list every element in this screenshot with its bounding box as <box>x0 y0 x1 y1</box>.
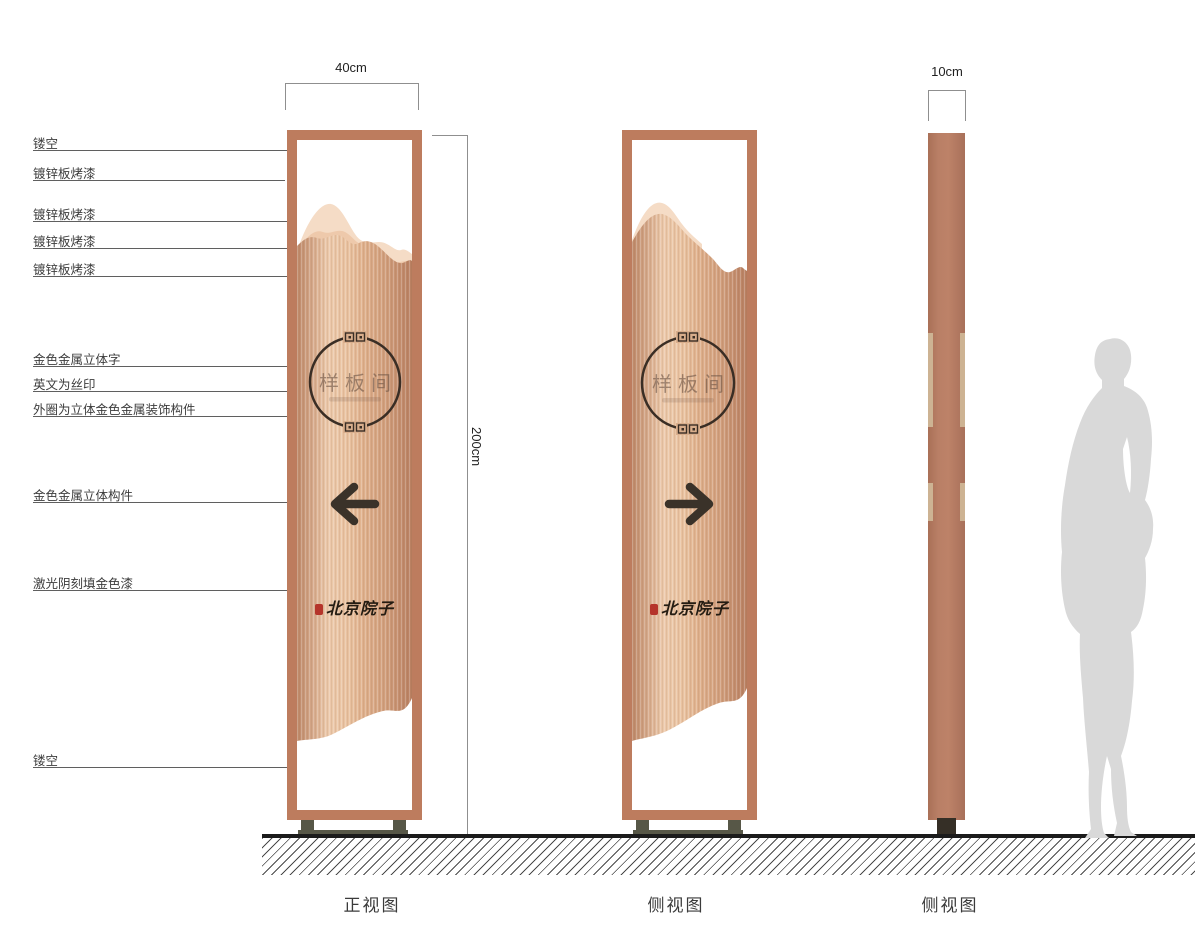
callout-leader-line <box>33 248 292 249</box>
room-name-text: 样板间 <box>652 373 730 396</box>
dimension-height: 200cm <box>469 427 484 466</box>
english-silkscreen-line <box>662 398 714 403</box>
drawing-canvas: 镂空 镀锌板烤漆 镀锌板烤漆 镀锌板烤漆 镀锌板烤漆 金色金属立体字 英文为丝印… <box>0 0 1195 927</box>
profile-edge-strip <box>960 483 965 521</box>
callout-leader-line <box>33 590 310 591</box>
dimension-bracket-front <box>285 83 419 110</box>
brand-name-text: 北京院子 <box>326 601 394 618</box>
callout-leader-line <box>33 221 325 222</box>
caption-side-view-1: 侧视图 <box>591 891 761 916</box>
greek-key-ornament-bottom <box>676 423 700 435</box>
english-silkscreen-line <box>329 397 381 402</box>
brand-logo-front: 北京院子 <box>287 595 422 619</box>
callout-leader-line <box>33 150 307 151</box>
red-seal-icon <box>315 604 323 615</box>
human-silhouette <box>1040 335 1185 840</box>
caption-front-view: 正视图 <box>287 891 457 916</box>
greek-key-ornament-bottom <box>343 421 367 433</box>
side-view-pillar: 样板间 <box>622 130 757 820</box>
callout-leader-line <box>33 767 305 768</box>
ground-hatch <box>262 838 1195 875</box>
dimension-tick-height <box>432 135 467 136</box>
profile-edge-strip <box>928 333 933 427</box>
caption-side-view-2: 侧视图 <box>865 891 1035 916</box>
copper-panel-texture <box>632 214 747 741</box>
brand-logo-side: 北京院子 <box>622 595 757 619</box>
callout-leader-line <box>33 416 318 417</box>
dimension-bracket-side <box>928 90 966 121</box>
greek-key-ornament-top <box>343 331 367 343</box>
front-view-pillar: 样板间 <box>287 130 422 820</box>
brand-name-text: 北京院子 <box>661 601 729 618</box>
dimension-width-side: 10cm <box>918 64 976 79</box>
callout-leader-line <box>33 391 327 392</box>
profile-edge-strip <box>928 483 933 521</box>
red-seal-icon <box>650 604 658 615</box>
room-name-text: 样板间 <box>319 372 397 395</box>
profile-edge-strip <box>960 333 965 427</box>
callout-leader-line <box>33 180 285 181</box>
callout-leader-line <box>33 276 293 277</box>
dimension-line-height <box>467 135 468 835</box>
dimension-width-front: 40cm <box>285 60 417 75</box>
greek-key-ornament-top <box>676 331 700 343</box>
profile-view-pillar <box>928 133 965 820</box>
